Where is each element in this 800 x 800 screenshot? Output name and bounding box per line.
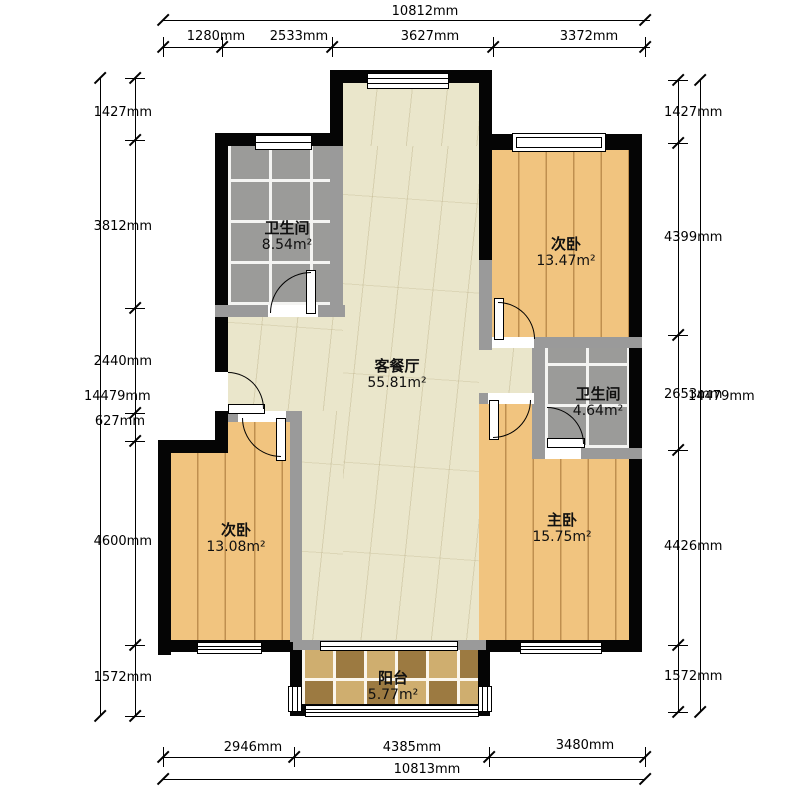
window-master — [520, 642, 602, 654]
dim-label: 627mm — [95, 414, 145, 429]
tick-cross — [489, 747, 490, 767]
tick-cross — [668, 645, 688, 646]
dim-label: 2533mm — [270, 29, 328, 44]
room-label-bedroom-top: 次卧 13.47m² — [536, 236, 595, 269]
window-balcony-door — [320, 641, 458, 651]
room-master-floor-b — [479, 459, 629, 640]
tick-cross — [163, 747, 164, 767]
dim-label: 4399mm — [664, 230, 722, 245]
room-area: 13.47m² — [536, 253, 595, 269]
dim-label: 1280mm — [187, 29, 245, 44]
room-living-floor-main — [343, 146, 479, 640]
room-name: 客餐厅 — [367, 358, 426, 375]
dim-label: 1572mm — [664, 669, 722, 684]
room-name: 次卧 — [536, 236, 595, 253]
wall-living-left — [330, 146, 343, 317]
dim-label: 4600mm — [94, 534, 152, 549]
window-bathroom-top — [255, 135, 312, 150]
tick-cross — [294, 747, 295, 767]
dim-label: 1427mm — [664, 105, 722, 120]
tick-cross — [645, 37, 646, 57]
tick-cross — [125, 140, 145, 141]
tick-cross — [493, 37, 494, 57]
tick-cross — [125, 308, 145, 309]
room-name: 次卧 — [206, 522, 265, 539]
wall-right-outer — [629, 134, 642, 652]
dim-label: 1427mm — [94, 105, 152, 120]
dim-line-bottom-segments — [163, 757, 645, 758]
door-opening-bathroom-right — [545, 448, 581, 459]
tick-cross — [668, 712, 688, 713]
dim-label-right-total: 14479mm — [688, 389, 755, 404]
room-label-balcony: 阳台 5.77m² — [368, 670, 418, 703]
dim-label-left-total: 14479mm — [84, 389, 151, 404]
tick-cross — [125, 78, 145, 79]
room-label-master: 主卧 15.75m² — [532, 512, 591, 545]
dim-label: 3627mm — [401, 29, 459, 44]
room-area: 5.77m² — [368, 687, 418, 703]
wall-bedroom-left-right — [290, 411, 302, 642]
tick-cross — [332, 37, 333, 57]
room-label-bathroom-right: 卫生间 4.64m² — [573, 386, 623, 419]
room-living-floor-top — [343, 83, 479, 146]
room-name: 卫生间 — [573, 386, 623, 403]
wall-living-bay-right — [479, 70, 492, 265]
room-area: 55.81m² — [367, 375, 426, 391]
tick-cross — [163, 37, 164, 57]
room-living-floor-southwest — [302, 411, 343, 640]
tick-cross — [668, 143, 688, 144]
room-label-living: 客餐厅 55.81m² — [367, 358, 426, 391]
window-living-bay — [367, 73, 449, 89]
dim-label: 3372mm — [560, 29, 618, 44]
room-name: 主卧 — [532, 512, 591, 529]
room-living-floor-east — [479, 348, 532, 393]
room-area: 15.75m² — [532, 529, 591, 545]
dim-label: 1572mm — [94, 670, 152, 685]
window-bedroom-top — [512, 133, 606, 152]
tick-cross — [668, 80, 688, 81]
room-name: 卫生间 — [262, 220, 312, 237]
room-label-bathroom-top: 卫生间 8.54m² — [262, 220, 312, 253]
window-balcony-right — [478, 686, 492, 712]
dim-line-top-total — [162, 20, 650, 21]
tick-cross — [125, 716, 145, 717]
window-balcony-left — [288, 686, 302, 712]
room-area: 13.08m² — [206, 539, 265, 555]
tick-cross — [125, 413, 145, 414]
dim-label: 3480mm — [556, 738, 614, 753]
dim-label: 2946mm — [224, 740, 282, 755]
window-bedroom-left — [197, 642, 262, 654]
room-area: 8.54m² — [262, 237, 312, 253]
tick-cross — [222, 37, 223, 57]
room-area: 4.64m² — [573, 403, 623, 419]
dim-label: 4426mm — [664, 539, 722, 554]
dim-label-top-total: 10812mm — [392, 4, 459, 19]
tick-cross — [668, 335, 688, 336]
room-name: 阳台 — [368, 670, 418, 687]
floor-plan: 卫生间 8.54m² 次卧 13.47m² 客餐厅 55.81m² 卫生间 4.… — [0, 0, 800, 800]
dim-label: 3812mm — [94, 219, 152, 234]
dim-line-bottom-total — [163, 779, 645, 780]
wall-bathroom-top-left — [215, 133, 228, 372]
dim-label: 4385mm — [383, 740, 441, 755]
wall-left-lower — [158, 440, 171, 655]
dim-label-bottom-total: 10813mm — [394, 762, 461, 777]
room-label-bedroom-left: 次卧 13.08m² — [206, 522, 265, 555]
dim-line-top-segments — [162, 47, 650, 48]
tick-cross — [125, 441, 145, 442]
tick-cross — [645, 747, 646, 767]
tick-cross — [125, 645, 145, 646]
tick-cross — [668, 450, 688, 451]
dim-label: 2440mm — [94, 354, 152, 369]
window-balcony-bottom — [305, 705, 479, 717]
